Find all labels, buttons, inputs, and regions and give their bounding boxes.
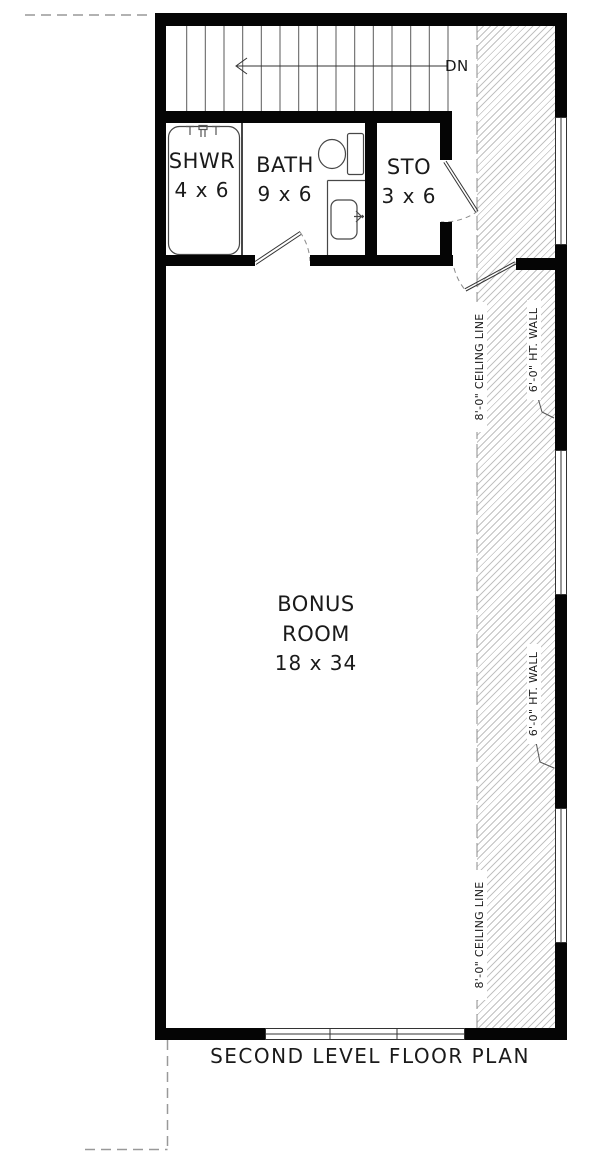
wall-right-seg-3 (555, 595, 567, 808)
ceiling-line-label-upper: 8'-0" CEILING LINE (473, 302, 487, 432)
half-wall-label-upper: 6'-0" HT. WALL (527, 300, 541, 400)
toilet-icon (319, 134, 364, 175)
wall-top (155, 13, 567, 26)
shower-room-name: SHWR (162, 146, 242, 176)
wall-right-seg-1 (555, 13, 567, 117)
wall-stair-bath (166, 111, 450, 123)
storage-room-name: STO (369, 152, 449, 182)
bath-room-size: 9 x 6 (245, 180, 325, 208)
wall-right-seg-2 (555, 245, 567, 450)
bonus-room-name-line2: ROOM (256, 619, 376, 649)
bottom-wall-windows (266, 1029, 465, 1040)
stair-down-arrow (236, 58, 448, 74)
wall-bottom-seg-2 (465, 1028, 567, 1040)
storage-room-size: 3 x 6 (369, 182, 449, 210)
shower-room-size: 4 x 6 (162, 176, 242, 204)
wall-right-jog (516, 258, 567, 270)
wall-right-seg-4 (555, 943, 567, 1040)
storage-room-label: STO 3 x 6 (369, 152, 449, 210)
right-wall-windows (556, 118, 567, 943)
bonus-room-name-line1: BONUS (256, 589, 376, 619)
bath-room-label: BATH 9 x 6 (245, 150, 325, 208)
half-wall-label-lower: 6'-0" HT. WALL (527, 644, 541, 744)
bonus-room-size: 18 x 34 (256, 649, 376, 677)
stair-down-label: DN (445, 57, 469, 75)
vanity-sink-icon (328, 181, 366, 256)
bonus-room-label: BONUS ROOM 18 x 34 (256, 589, 376, 677)
construction-guide-lines (25, 15, 168, 1150)
shower-valve-icon (186, 126, 220, 138)
ceiling-line-label-lower: 8'-0" CEILING LINE (473, 870, 487, 1000)
wall-bottom-seg-1 (155, 1028, 265, 1040)
wall-bath-bottom-left (166, 255, 255, 266)
bath-door (255, 232, 310, 265)
stair-treads (187, 26, 448, 111)
wall-bath-bottom-right (310, 255, 453, 266)
shower-room-label: SHWR 4 x 6 (162, 146, 242, 204)
page-title: SECOND LEVEL FLOOR PLAN (170, 1044, 570, 1068)
bath-room-name: BATH (245, 150, 325, 180)
bonus-room-door (454, 262, 516, 291)
floor-plan-canvas: DN SHWR 4 x 6 BATH 9 x 6 STO 3 x 6 BONUS… (0, 0, 600, 1160)
